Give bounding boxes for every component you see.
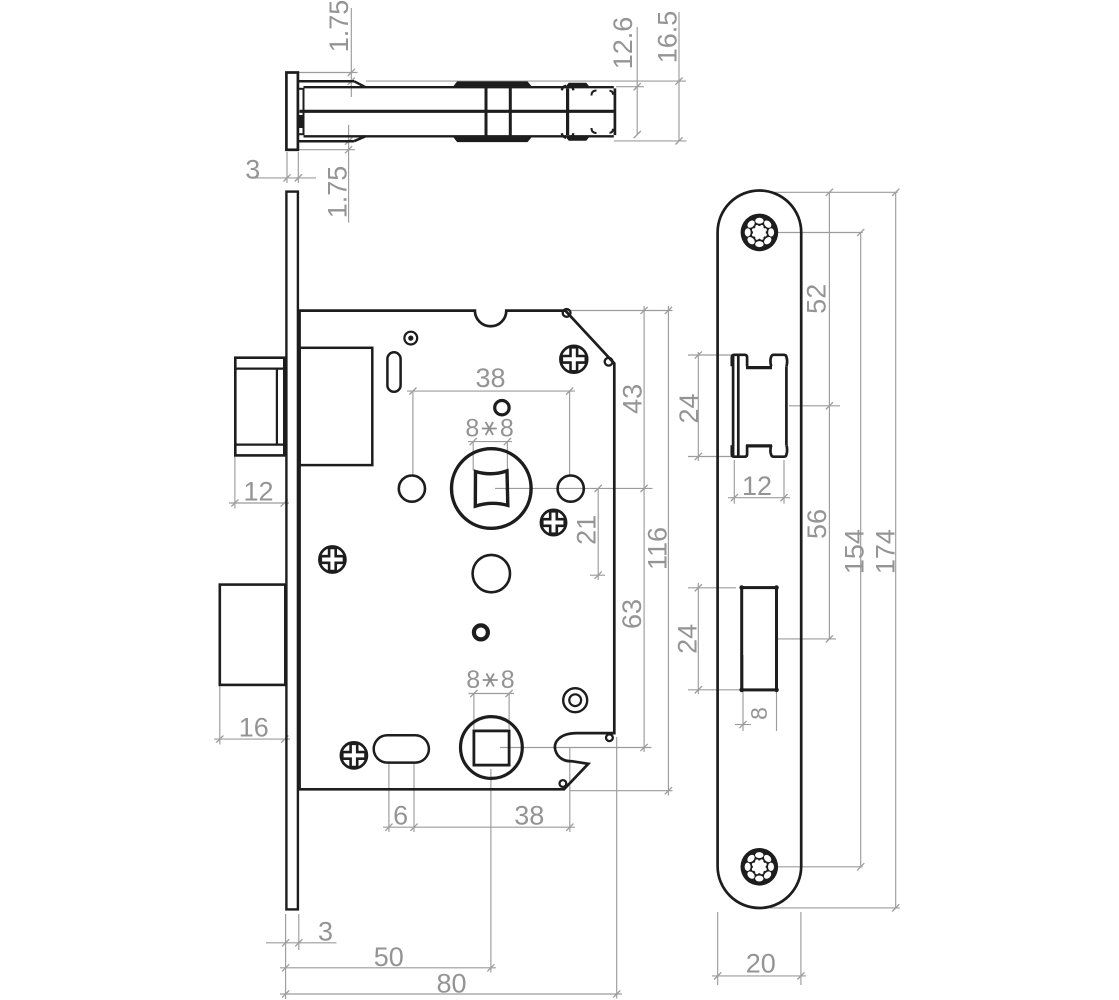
svg-text:6: 6 — [393, 801, 408, 831]
svg-text:21: 21 — [572, 515, 602, 545]
svg-text:116: 116 — [642, 527, 672, 570]
svg-text:63: 63 — [617, 599, 647, 629]
svg-text:174: 174 — [870, 529, 900, 574]
svg-text:80: 80 — [436, 969, 466, 999]
svg-text:50: 50 — [374, 942, 404, 972]
svg-text:8: 8 — [500, 415, 514, 443]
svg-text:24: 24 — [673, 624, 703, 654]
svg-text:8: 8 — [466, 666, 480, 694]
svg-text:24: 24 — [674, 393, 704, 423]
svg-text:12: 12 — [243, 477, 273, 507]
svg-text:43: 43 — [617, 384, 647, 414]
svg-text:38: 38 — [514, 801, 544, 831]
svg-text:8: 8 — [465, 415, 479, 443]
svg-text:16: 16 — [239, 713, 269, 743]
svg-text:3: 3 — [245, 155, 260, 185]
svg-text:8: 8 — [746, 707, 772, 720]
svg-text:56: 56 — [802, 509, 832, 539]
svg-text:16.5: 16.5 — [653, 11, 683, 64]
svg-text:8: 8 — [501, 666, 515, 694]
svg-text:52: 52 — [802, 284, 832, 314]
svg-text:38: 38 — [475, 363, 505, 393]
svg-text:1.75: 1.75 — [324, 0, 354, 52]
svg-text:12.6: 12.6 — [608, 17, 638, 70]
svg-text:1.75: 1.75 — [323, 166, 353, 219]
svg-text:3: 3 — [318, 917, 333, 947]
svg-text:12: 12 — [742, 471, 772, 501]
svg-text:154: 154 — [840, 529, 870, 574]
svg-text:20: 20 — [746, 948, 776, 978]
